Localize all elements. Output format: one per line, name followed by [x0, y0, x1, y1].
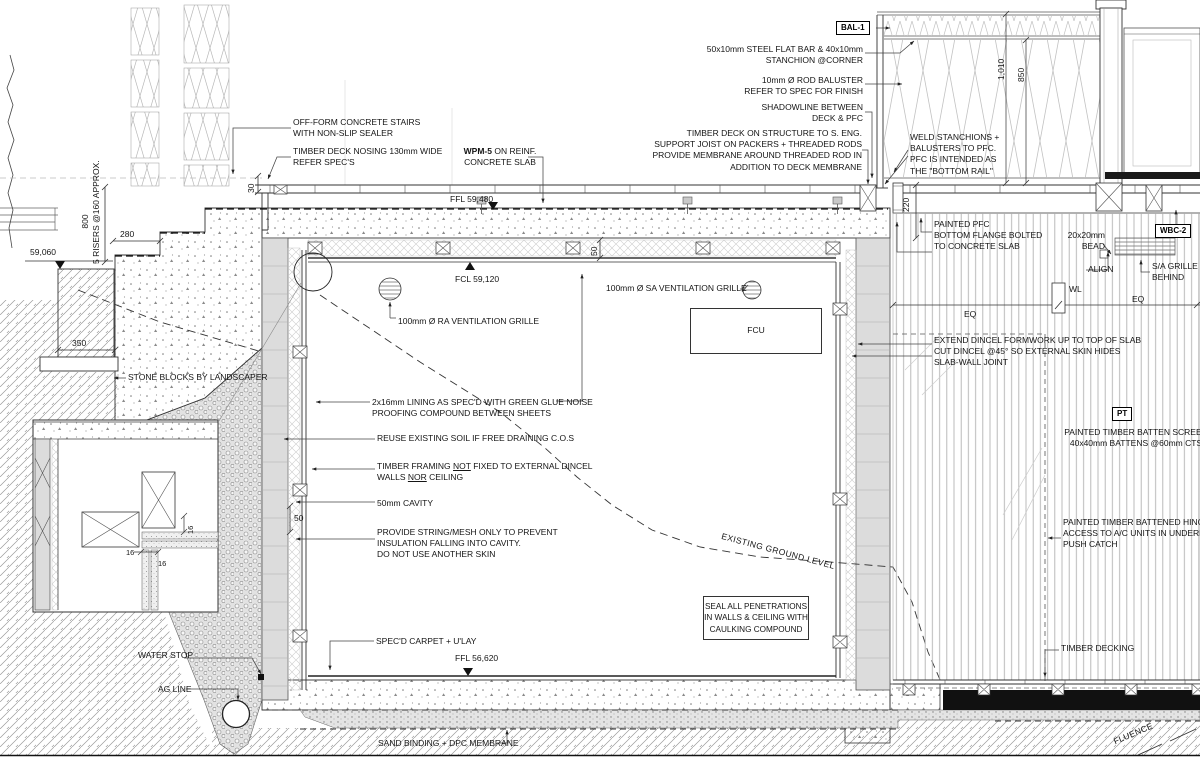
dim-eq-left: EQ: [964, 309, 976, 320]
note-painted-pfc: PAINTED PFC BOTTOM FLANGE BOLTED TO CONC…: [934, 219, 1042, 253]
note-lining: 2x16mm LINING AS SPEC'D WITH GREEN GLUE …: [372, 397, 593, 419]
dim-50-ceiling: 50: [589, 247, 600, 256]
note-hinged-door: PAINTED TIMBER BATTENED HINGED DO ACCESS…: [1063, 517, 1200, 551]
dim-eq-right: EQ: [1132, 294, 1144, 305]
note-extend-dincel: EXTEND DINCEL FORMWORK UP TO TOP OF SLAB…: [934, 335, 1141, 369]
note-ag-line: AG LINE: [158, 684, 192, 695]
note-bead: 20x20mm BEAD: [1068, 230, 1105, 252]
dim-risers: 8005 RISERS @160 APPROX.: [80, 179, 102, 264]
note-water-stop: WATER STOP: [138, 650, 193, 661]
dim-50-wall: 50: [294, 513, 303, 524]
fcu-box: FCU: [690, 308, 822, 354]
dim-16-b: 16: [126, 548, 134, 558]
dim-16-c: 16: [158, 559, 166, 569]
note-align: ALIGN: [1088, 264, 1114, 275]
note-string-mesh: PROVIDE STRING/MESH ONLY TO PREVENT INSU…: [377, 527, 558, 561]
note-timber-decking: TIMBER DECKING: [1061, 643, 1134, 654]
note-deck-nosing: TIMBER DECK NOSING 130mm WIDE REFER SPEC…: [293, 146, 442, 168]
note-stone-blocks: STONE BLOCKS BY LANDSCAPER: [128, 372, 268, 383]
tag-wbc2: WBC-2: [1155, 224, 1191, 238]
note-sa-grille: 100mm Ø SA VENTILATION GRILLE: [606, 283, 747, 294]
note-offform-stairs: OFF-FORM CONCRETE STAIRS WITH NON-SLIP S…: [293, 117, 420, 139]
note-carpet: SPEC'D CARPET + U'LAY: [376, 636, 476, 647]
note-weld-stanchions: WELD STANCHIONS + BALUSTERS TO PFC. PFC …: [910, 132, 999, 177]
note-sand-binding: SAND BINDING + DPC MEMBRANE: [378, 738, 519, 749]
dim-16-a: 16: [186, 526, 196, 534]
note-timber-framing: TIMBER FRAMING NOT FIXED TO EXTERNAL DIN…: [377, 461, 593, 483]
note-timber-deck-structure: TIMBER DECK ON STRUCTURE TO S. ENG. SUPP…: [652, 128, 862, 173]
note-seal-penetrations: SEAL ALL PENETRATIONS IN WALLS & CEILING…: [703, 596, 809, 640]
level-59060: 59,060: [30, 247, 56, 258]
note-rod-baluster: 10mm Ø ROD BALUSTER REFER TO SPEC FOR FI…: [744, 75, 863, 97]
dim-350: 350: [72, 338, 86, 349]
dim-280: 280: [120, 229, 134, 240]
label-wl: WL: [1069, 284, 1082, 295]
dim-1010: 1,010: [996, 59, 1007, 80]
section-detail-sheet: OFF-FORM CONCRETE STAIRS WITH NON-SLIP S…: [0, 0, 1200, 765]
dim-30: 30: [246, 184, 257, 193]
note-reuse-soil: REUSE EXISTING SOIL IF FREE DRAINING C.O…: [377, 433, 574, 444]
note-sa-grille-behind: S/A GRILLE BEHIND: [1152, 261, 1198, 283]
note-batten-screen: PAINTED TIMBER BATTEN SCREEN 40x40mm BAT…: [1062, 427, 1200, 449]
level-ffl-upper: FFL 59,480: [450, 194, 493, 205]
note-wpm5: WPM-5 ON REINF.CONCRETE SLAB: [452, 146, 548, 168]
level-fcl: FCL 59,120: [455, 274, 499, 285]
tag-bal1: BAL-1: [836, 21, 870, 35]
note-steel-flat-bar: 50x10mm STEEL FLAT BAR & 40x10mm STANCHI…: [707, 44, 863, 66]
note-cavity: 50mm CAVITY: [377, 498, 433, 509]
tag-pt: PT: [1112, 407, 1132, 421]
dim-850: 850: [1016, 68, 1027, 82]
note-ra-grille: 100mm Ø RA VENTILATION GRILLE: [398, 316, 539, 327]
note-shadowline: SHADOWLINE BETWEEN DECK & PFC: [761, 102, 863, 124]
dim-220: 220: [901, 198, 912, 212]
level-ffl-lower: FFL 56,620: [455, 653, 498, 664]
